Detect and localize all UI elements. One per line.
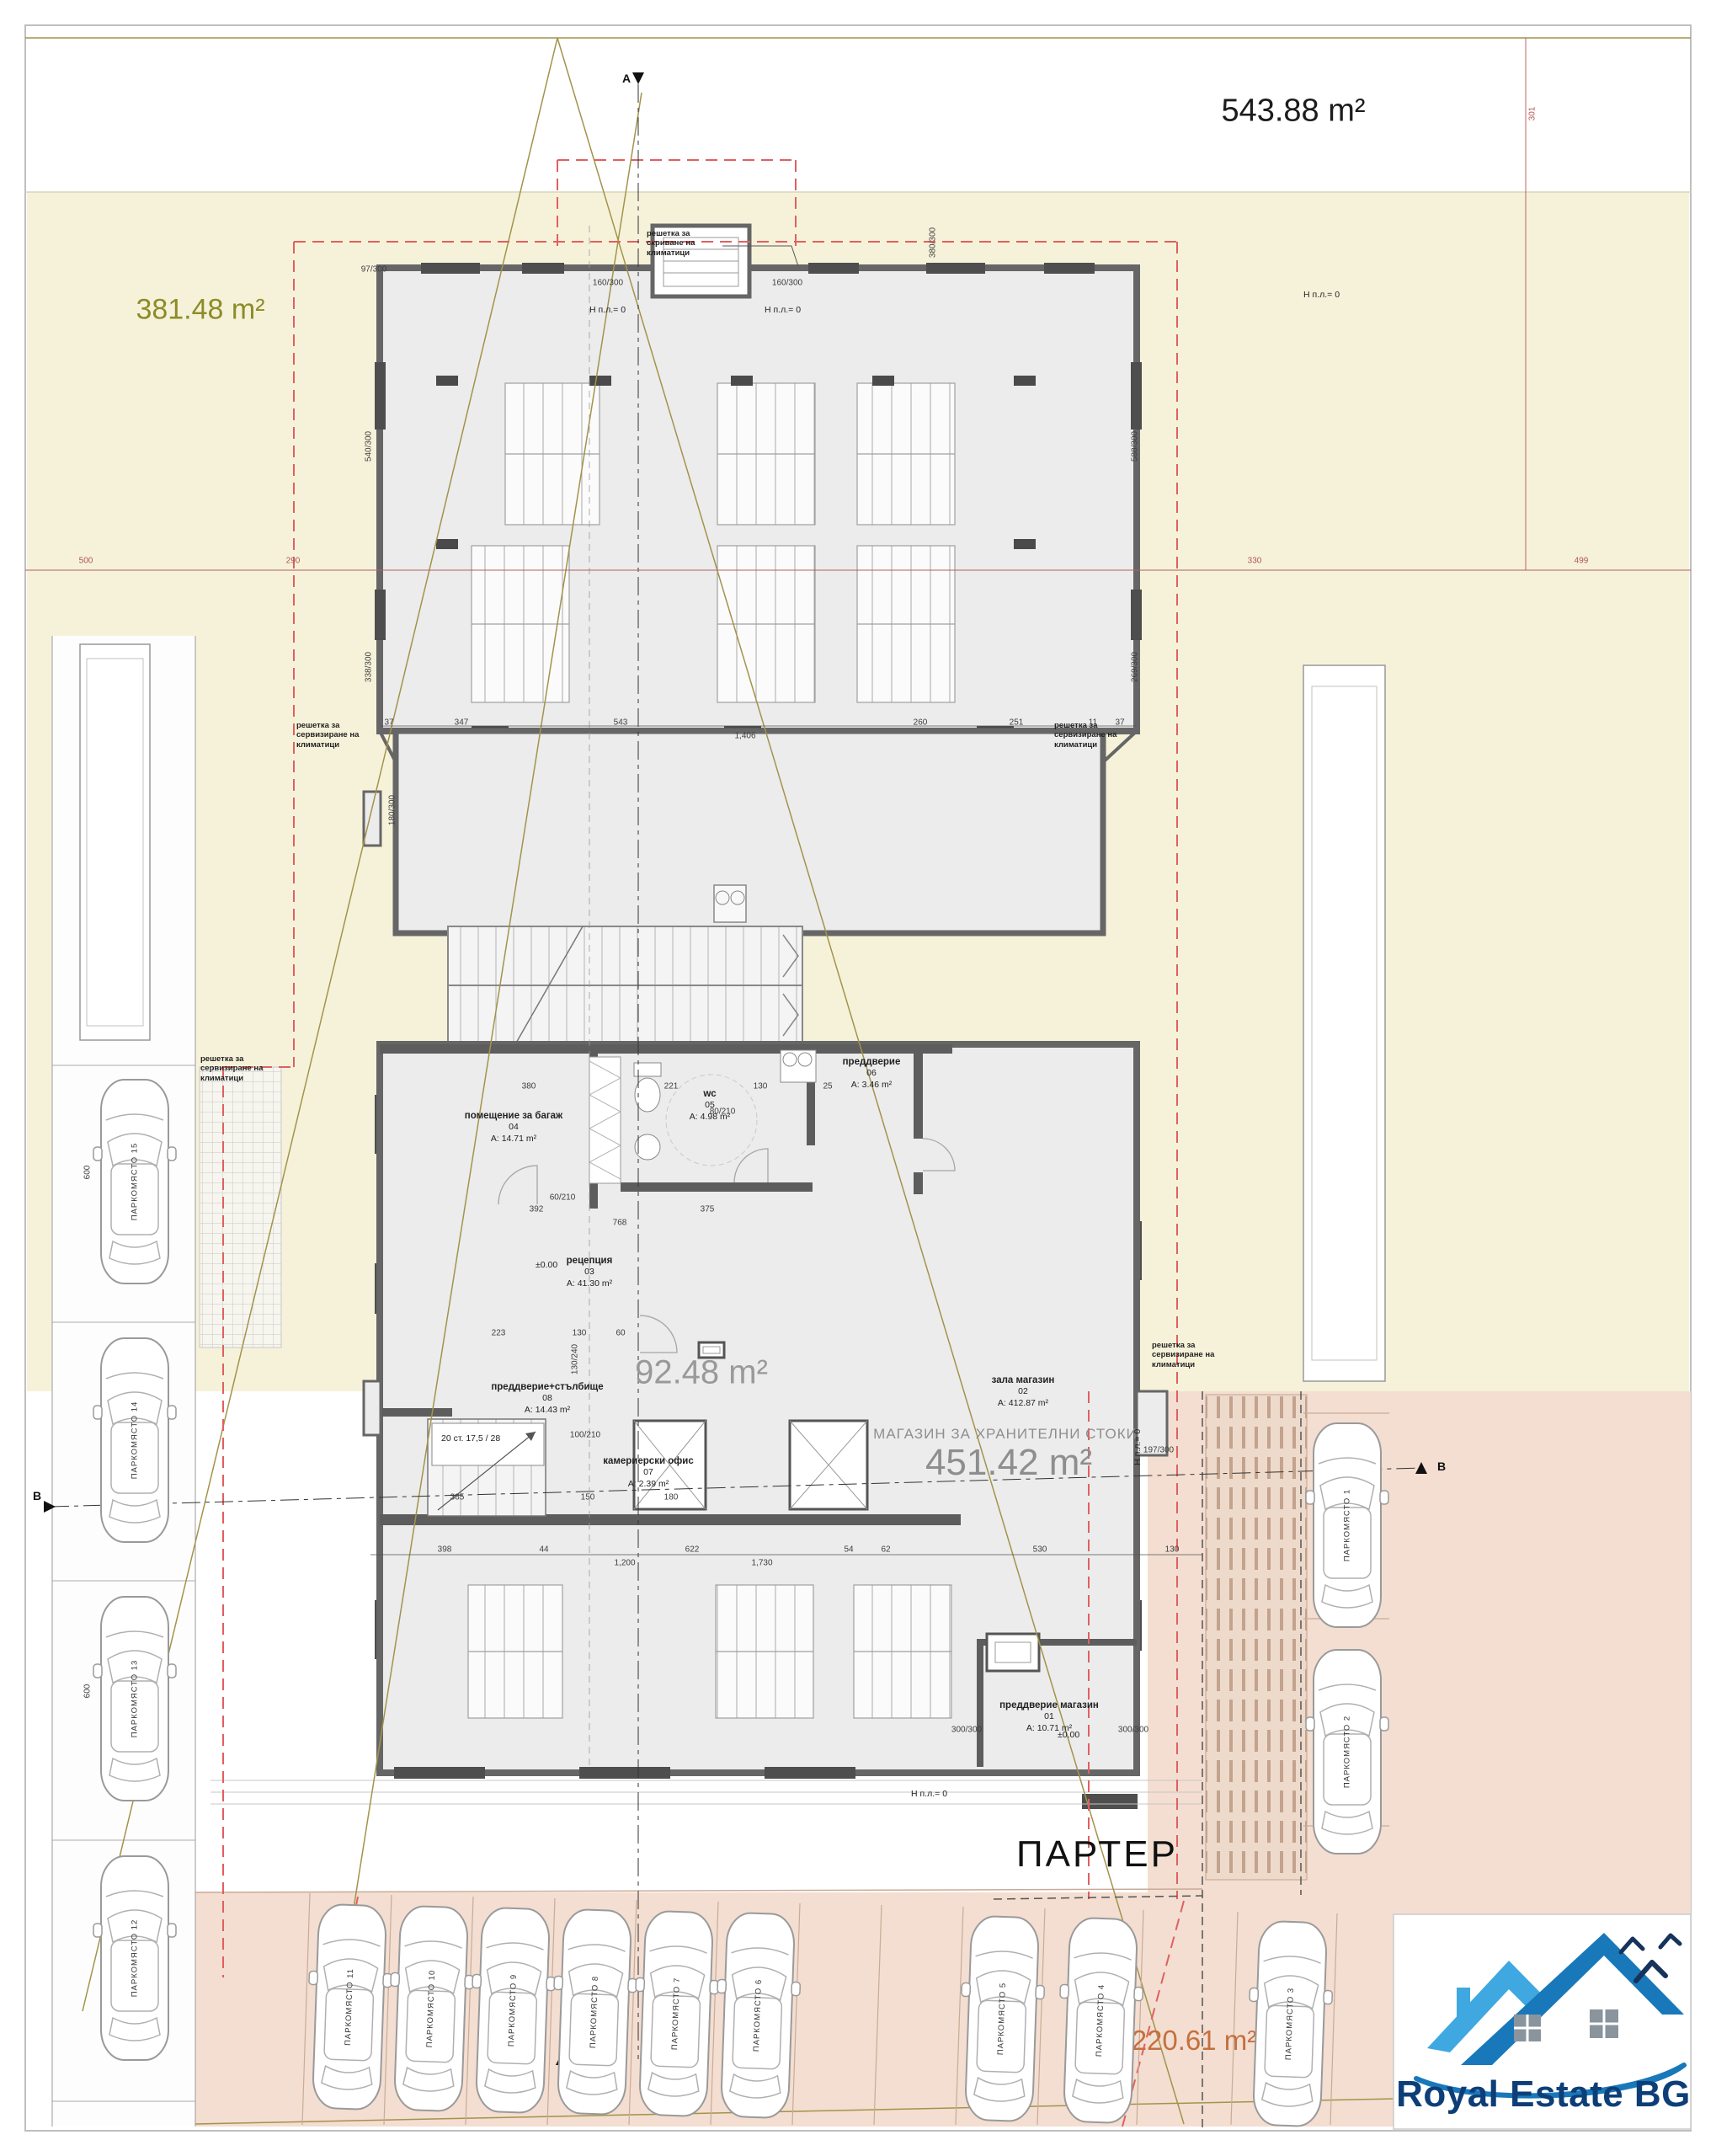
dimension-label: 499 bbox=[1575, 557, 1589, 566]
dimension-label: 37 bbox=[1115, 718, 1124, 728]
parked-car: ПАРКОМЯСТО 15 bbox=[93, 1076, 177, 1287]
dimension-label: 600 bbox=[83, 1166, 93, 1180]
annotation-label: решетка за скриване на климатици bbox=[647, 229, 695, 258]
dimension-label: 80/210 bbox=[710, 1107, 736, 1117]
dimension-label: 180 bbox=[664, 1493, 679, 1502]
dimension-label: 600 bbox=[83, 1684, 93, 1699]
dimension-label: 44 bbox=[539, 1545, 548, 1555]
parked-car: ПАРКОМЯСТО 13 bbox=[93, 1593, 177, 1804]
floorplan-sheet: 543.88 m² 381.48 m² 92.48 m² МАГАЗИН ЗА … bbox=[0, 0, 1716, 2156]
parking-spot-label: ПАРКОМЯСТО 12 bbox=[131, 1919, 140, 1998]
room-label: wc 05 A: 4.98 m² bbox=[690, 1088, 730, 1123]
dimension-label: 398 bbox=[438, 1545, 452, 1555]
annotation-label: ±0.00 bbox=[1058, 1730, 1079, 1741]
dimension-label: 338/300 bbox=[365, 652, 374, 682]
room-number: 02 bbox=[992, 1386, 1055, 1397]
room-number: 04 bbox=[465, 1122, 562, 1133]
dimension-label: 543 bbox=[614, 718, 628, 728]
parking-spot-label: ПАРКОМЯСТО 2 bbox=[1343, 1716, 1352, 1788]
parked-car: ПАРКОМЯСТО 2 bbox=[1305, 1646, 1389, 1857]
parked-car: ПАРКОМЯСТО 6 bbox=[712, 1908, 804, 2121]
dimension-label: 221 bbox=[664, 1082, 679, 1091]
room-area: A: 3.46 m² bbox=[843, 1080, 901, 1091]
store-area-label: 451.42 m² bbox=[925, 1442, 1092, 1484]
room-label: рецепция 03 A: 41.30 m² bbox=[567, 1255, 613, 1289]
dimension-label: A bbox=[622, 72, 631, 85]
dimension-label: 588/300 bbox=[1131, 431, 1140, 462]
floor-title: ПАРТЕР bbox=[1016, 1833, 1178, 1876]
room-label: преддверие+стълбище 08 A: 14.43 m² bbox=[491, 1381, 603, 1416]
dimension-label: 223 bbox=[492, 1329, 506, 1338]
parked-car: ПАРКОМЯСТО 9 bbox=[467, 1903, 559, 2116]
dimension-label: 385 bbox=[450, 1493, 465, 1502]
room-label: камериерски офис 07 A: 2.39 m² bbox=[603, 1455, 694, 1490]
annotation-label: H п.л.= 0 bbox=[589, 305, 626, 316]
dimension-label: 197/300 bbox=[1143, 1446, 1174, 1455]
dimension-label: 1,406 bbox=[734, 732, 755, 741]
dimension-label: 768 bbox=[613, 1219, 627, 1228]
royal-estate-logo-text: Royal Estate BG bbox=[1396, 2073, 1691, 2116]
parked-car: ПАРКОМЯСТО 12 bbox=[93, 1853, 177, 2063]
dimension-label: 37 bbox=[384, 718, 393, 728]
dimension-label: B bbox=[1437, 1460, 1446, 1473]
dimension-label: 60/210 bbox=[550, 1193, 576, 1203]
dimension-label: 100/210 bbox=[570, 1431, 600, 1440]
dimension-label: 160/300 bbox=[593, 279, 623, 288]
room-label: зала магазин 02 A: 412.87 m² bbox=[992, 1374, 1055, 1409]
dimension-label: 330 bbox=[1248, 557, 1262, 566]
annotation-label: H п.л.= 0 bbox=[911, 1789, 947, 1800]
parked-car: ПАРКОМЯСТО 8 bbox=[549, 1905, 641, 2118]
dimension-label: 1,730 bbox=[751, 1559, 772, 1568]
dimension-label: 130 bbox=[1165, 1545, 1180, 1555]
parked-car: ПАРКОМЯСТО 3 bbox=[1244, 1917, 1336, 2130]
dimension-label: 300/300 bbox=[951, 1726, 982, 1735]
room-area: A: 14.43 m² bbox=[491, 1405, 603, 1416]
parking-spot-label: ПАРКОМЯСТО 1 bbox=[1343, 1489, 1352, 1561]
room-label: преддверие магазин 01 A: 10.71 m² bbox=[999, 1700, 1099, 1734]
dimension-label: 300/300 bbox=[1118, 1726, 1148, 1735]
room-number: 08 bbox=[491, 1393, 603, 1404]
room-name: wc bbox=[690, 1088, 730, 1100]
dimension-label: 622 bbox=[685, 1545, 700, 1555]
room-name: камериерски офис bbox=[603, 1455, 694, 1467]
dimension-label: 180/300 bbox=[388, 795, 397, 825]
room-name: зала магазин bbox=[992, 1374, 1055, 1386]
parking-spot-label: ПАРКОМЯСТО 14 bbox=[131, 1401, 140, 1480]
dimension-label: 60 bbox=[616, 1329, 625, 1338]
parked-car: ПАРКОМЯСТО 1 bbox=[1305, 1420, 1389, 1630]
room-label: преддверие 06 A: 3.46 m² bbox=[843, 1056, 901, 1091]
parked-car: ПАРКОМЯСТО 10 bbox=[386, 1902, 477, 2115]
parked-car: ПАРКОМЯСТО 4 bbox=[1055, 1913, 1147, 2127]
room-name: преддверие магазин bbox=[999, 1700, 1099, 1711]
annotation-label: решетка за сервизиране на климатици bbox=[1152, 1341, 1214, 1369]
dimension-label: 380 bbox=[522, 1082, 536, 1091]
dimension-label: 1,200 bbox=[614, 1559, 635, 1568]
annotation-label: 20 ст. 17,5 / 28 bbox=[441, 1433, 500, 1444]
dimension-label: 130 bbox=[573, 1329, 587, 1338]
dimension-label: 11 bbox=[1089, 718, 1097, 728]
dimension-label: 375 bbox=[701, 1205, 715, 1214]
room-name: преддверие+стълбище bbox=[491, 1381, 603, 1393]
dimension-label: 347 bbox=[455, 718, 469, 728]
plot-area-left: 381.48 m² bbox=[136, 294, 264, 327]
parking-spot-label: ПАРКОМЯСТО 13 bbox=[131, 1660, 140, 1738]
dimension-label: 160/300 bbox=[772, 279, 802, 288]
room-name: помещение за багаж bbox=[465, 1110, 562, 1122]
dimension-label: 500 bbox=[79, 557, 93, 566]
room-number: 03 bbox=[567, 1267, 613, 1278]
annotation-label: ±0.00 bbox=[536, 1260, 557, 1271]
dimension-label: 130/240 bbox=[571, 1344, 580, 1374]
annotation-label: H п.л.= 0 bbox=[765, 305, 801, 316]
room-area: A: 10.71 m² bbox=[999, 1723, 1099, 1734]
room-label: помещение за багаж 04 A: 14.71 m² bbox=[465, 1110, 562, 1145]
dimension-label: 540/300 bbox=[365, 431, 374, 462]
hall-area-label: 92.48 m² bbox=[635, 1354, 768, 1392]
parked-car: ПАРКОМЯСТО 7 bbox=[631, 1907, 722, 2120]
parked-car: ПАРКОМЯСТО 11 bbox=[304, 1900, 396, 2113]
dimension-label: 251 bbox=[1010, 718, 1024, 728]
parking-area-label: 220.61 m² bbox=[1132, 2025, 1257, 2057]
annotation-label: решетка за сервизиране на климатици bbox=[296, 721, 359, 750]
dimension-label: 301 bbox=[1528, 107, 1537, 121]
dimension-label: 380/300 bbox=[929, 227, 938, 258]
dimension-label: B bbox=[33, 1489, 41, 1502]
room-area: A: 2.39 m² bbox=[603, 1479, 694, 1490]
store-title: МАГАЗИН ЗА ХРАНИТЕЛНИ СТОКИ bbox=[873, 1426, 1138, 1443]
room-name: рецепция bbox=[567, 1255, 613, 1267]
dimension-label: 54 bbox=[844, 1545, 853, 1555]
dimension-label: 269/300 bbox=[1131, 652, 1140, 682]
plot-area-top-right: 543.88 m² bbox=[1221, 93, 1365, 130]
annotation-label: решетка за сервизиране на климатици bbox=[1054, 721, 1116, 750]
dimension-label: 392 bbox=[530, 1205, 544, 1214]
dimension-label: 130 bbox=[754, 1082, 768, 1091]
room-area: A: 14.71 m² bbox=[465, 1134, 562, 1145]
room-area: A: 41.30 m² bbox=[567, 1278, 613, 1289]
dimension-label: 260 bbox=[914, 718, 928, 728]
dimension-label: 62 bbox=[881, 1545, 890, 1555]
parking-spot-label: ПАРКОМЯСТО 15 bbox=[131, 1143, 140, 1221]
annotation-label: H п.л.= 0 bbox=[1132, 1429, 1143, 1465]
dimension-label: 150 bbox=[581, 1493, 595, 1502]
annotation-label: решетка за сервизиране на климатици bbox=[200, 1054, 263, 1083]
parked-car: ПАРКОМЯСТО 5 bbox=[957, 1912, 1048, 2125]
dimension-label: 97/300 bbox=[361, 265, 387, 275]
annotation-label: H п.л.= 0 bbox=[1303, 290, 1340, 301]
dimension-label: 290 bbox=[286, 557, 301, 566]
room-name: преддверие bbox=[843, 1056, 901, 1068]
dimension-label: 25 bbox=[823, 1082, 832, 1091]
parked-car: ПАРКОМЯСТО 14 bbox=[93, 1335, 177, 1545]
room-number: 07 bbox=[603, 1467, 694, 1478]
room-area: A: 412.87 m² bbox=[992, 1398, 1055, 1409]
room-number: 06 bbox=[843, 1068, 901, 1079]
room-number: 01 bbox=[999, 1711, 1099, 1722]
dimension-label: 530 bbox=[1033, 1545, 1047, 1555]
